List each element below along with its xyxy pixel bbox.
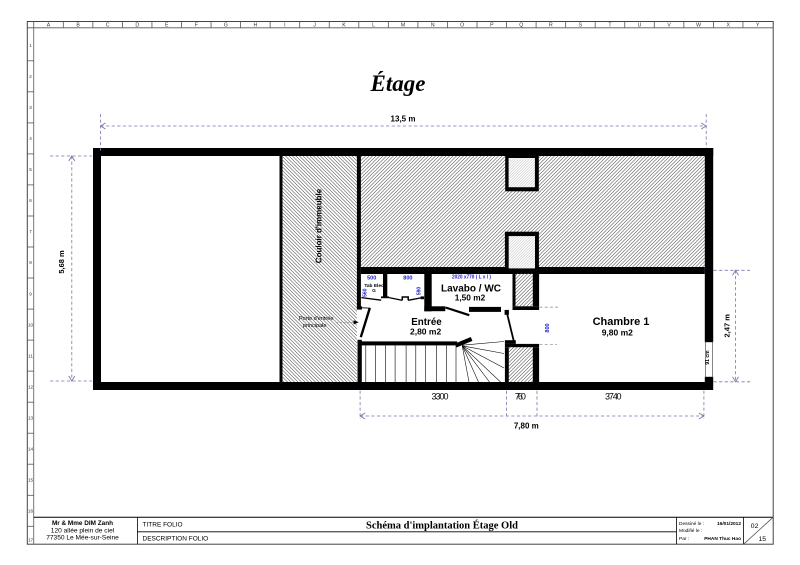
svg-text:principale: principale	[303, 323, 327, 329]
svg-text:S: S	[579, 22, 583, 28]
svg-text:Dessiné le :: Dessiné le :	[679, 521, 704, 527]
svg-text:11: 11	[28, 353, 33, 358]
svg-text:7: 7	[29, 229, 32, 234]
svg-text:10: 10	[28, 322, 34, 327]
svg-text:7,80 m: 7,80 m	[514, 422, 539, 431]
svg-text:A: A	[47, 22, 51, 28]
svg-text:4: 4	[29, 136, 32, 141]
svg-text:Q: Q	[519, 22, 523, 28]
svg-text:5: 5	[29, 167, 32, 172]
svg-text:PHAN Thuc Hao: PHAN Thuc Hao	[704, 536, 741, 542]
svg-text:Mr & Mme DIM Zanh: Mr & Mme DIM Zanh	[52, 520, 113, 527]
svg-text:9: 9	[29, 291, 32, 296]
svg-text:R: R	[549, 22, 553, 28]
svg-text:3740: 3740	[605, 392, 622, 402]
svg-text:3300: 3300	[432, 392, 449, 402]
svg-text:8: 8	[29, 260, 32, 265]
svg-text:J: J	[313, 22, 316, 28]
svg-text:6: 6	[29, 198, 32, 203]
svg-text:M: M	[401, 22, 405, 28]
svg-text:Étage: Étage	[370, 71, 426, 96]
svg-text:560: 560	[362, 288, 368, 297]
svg-text:800: 800	[545, 323, 551, 332]
svg-text:F: F	[195, 22, 198, 28]
svg-text:N: N	[431, 22, 435, 28]
svg-text:Porte d'entrée: Porte d'entrée	[299, 316, 333, 322]
svg-text:Modifié le :: Modifié le :	[679, 528, 702, 534]
svg-text:K: K	[342, 22, 346, 28]
svg-text:2,47 m: 2,47 m	[723, 314, 732, 338]
svg-text:14: 14	[28, 446, 34, 451]
svg-text:L: L	[372, 22, 375, 28]
svg-text:E: E	[165, 22, 169, 28]
svg-text:02: 02	[751, 523, 759, 530]
svg-text:5,68 m: 5,68 m	[57, 250, 66, 274]
svg-text:Couloir d'immeuble: Couloir d'immeuble	[315, 188, 324, 263]
svg-text:500: 500	[367, 275, 376, 281]
svg-text:3: 3	[29, 105, 32, 110]
svg-text:V: V	[667, 22, 671, 28]
svg-text:DESCRIPTION FOLIO: DESCRIPTION FOLIO	[143, 536, 209, 543]
svg-text:9,80 m2: 9,80 m2	[602, 328, 633, 338]
svg-text:O: O	[460, 22, 464, 28]
svg-text:P: P	[490, 22, 494, 28]
svg-text:G: G	[224, 22, 228, 28]
svg-text:1: 1	[29, 43, 32, 48]
svg-text:H: H	[254, 22, 258, 28]
svg-text:590: 590	[417, 287, 423, 296]
svg-text:X: X	[726, 22, 730, 28]
svg-text:17: 17	[28, 538, 34, 543]
svg-text:D: D	[135, 22, 139, 28]
svg-text:2020 x770 ( L x l ): 2020 x770 ( L x l )	[452, 275, 491, 281]
svg-text:W: W	[696, 22, 701, 28]
svg-text:15: 15	[759, 536, 767, 543]
svg-text:2: 2	[29, 74, 32, 79]
svg-text:13,5 m: 13,5 m	[391, 115, 416, 124]
svg-text:2,80 m2: 2,80 m2	[410, 326, 441, 336]
svg-text:16: 16	[28, 509, 34, 514]
svg-text:77350 Le Mée-sur-Seine: 77350 Le Mée-sur-Seine	[46, 534, 119, 541]
svg-text:G: G	[372, 288, 376, 294]
svg-text:760: 760	[515, 391, 526, 401]
svg-text:Par :: Par :	[679, 536, 689, 542]
svg-text:120 allée plein de ciel: 120 allée plein de ciel	[51, 527, 115, 534]
svg-text:16/01/2012: 16/01/2012	[717, 521, 741, 527]
svg-text:C: C	[106, 22, 110, 28]
svg-text:15: 15	[28, 478, 34, 483]
svg-text:13: 13	[28, 415, 34, 420]
svg-text:12: 12	[28, 384, 34, 389]
svg-text:91 cm: 91 cm	[705, 350, 711, 365]
svg-text:B: B	[76, 22, 80, 28]
svg-text:Y: Y	[756, 22, 760, 28]
svg-text:1,50 m2: 1,50 m2	[455, 292, 486, 302]
svg-text:I: I	[284, 22, 285, 28]
svg-text:TITRE FOLIO: TITRE FOLIO	[143, 522, 183, 529]
svg-text:800: 800	[403, 275, 412, 281]
svg-text:Schéma d'implantation Étage Ol: Schéma d'implantation Étage Old	[366, 520, 518, 532]
svg-text:U: U	[638, 22, 642, 28]
svg-text:Chambre 1: Chambre 1	[593, 316, 650, 328]
